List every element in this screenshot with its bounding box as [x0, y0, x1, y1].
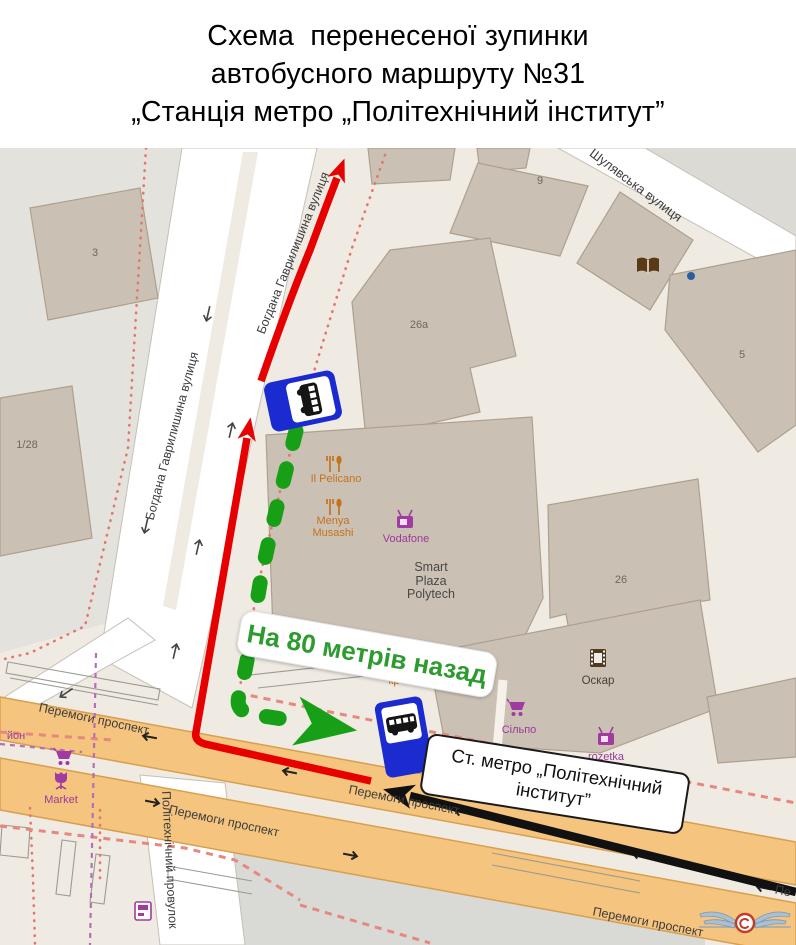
- street-label-peremohy-partial: Пе: [774, 883, 792, 900]
- poi-label-yon-partial: йон: [7, 730, 25, 742]
- building-label-26a: 26а: [410, 319, 428, 331]
- building-label-5: 5: [739, 349, 745, 361]
- scheme-page: Схема перенесеної зупинки автобусного ма…: [0, 0, 796, 945]
- cinema-icon-oskar: [590, 649, 606, 667]
- map-canvas: Богдана Гаврилишина вулиця Богдана Гаври…: [0, 148, 796, 945]
- poi-label-vodafone: Vodafone: [383, 533, 430, 545]
- footpath-stripe: [497, 680, 503, 750]
- poi-label-silpo: Сільпо: [502, 724, 537, 736]
- bus-stop-sign-new: [263, 369, 344, 433]
- poi-label-smart-plaza: Smart Plaza Polytech: [400, 561, 462, 602]
- building-label-9: 9: [537, 175, 543, 187]
- title-line-1: Схема перенесеної зупинки: [207, 17, 588, 55]
- title-line-2: автобусного маршруту №31: [211, 55, 586, 93]
- building-label-3: 3: [92, 247, 98, 259]
- poi-label-menya: Menya Musashi: [306, 516, 360, 540]
- poi-label-oskar: Оскар: [582, 675, 615, 687]
- poi-label-market: Market: [44, 794, 78, 806]
- building-label-1-28: 1/28: [16, 439, 37, 451]
- title-line-3: „Станція метро „Політехнічний інститут”: [131, 93, 665, 131]
- building-label-26: 26: [615, 574, 627, 586]
- ticket-machine-icon: [135, 902, 151, 920]
- poi-dot-icon: [687, 272, 695, 280]
- poi-label-il-pelicano: Il Pelicano: [311, 473, 362, 485]
- page-title: Схема перенесеної зупинки автобусного ма…: [0, 0, 796, 148]
